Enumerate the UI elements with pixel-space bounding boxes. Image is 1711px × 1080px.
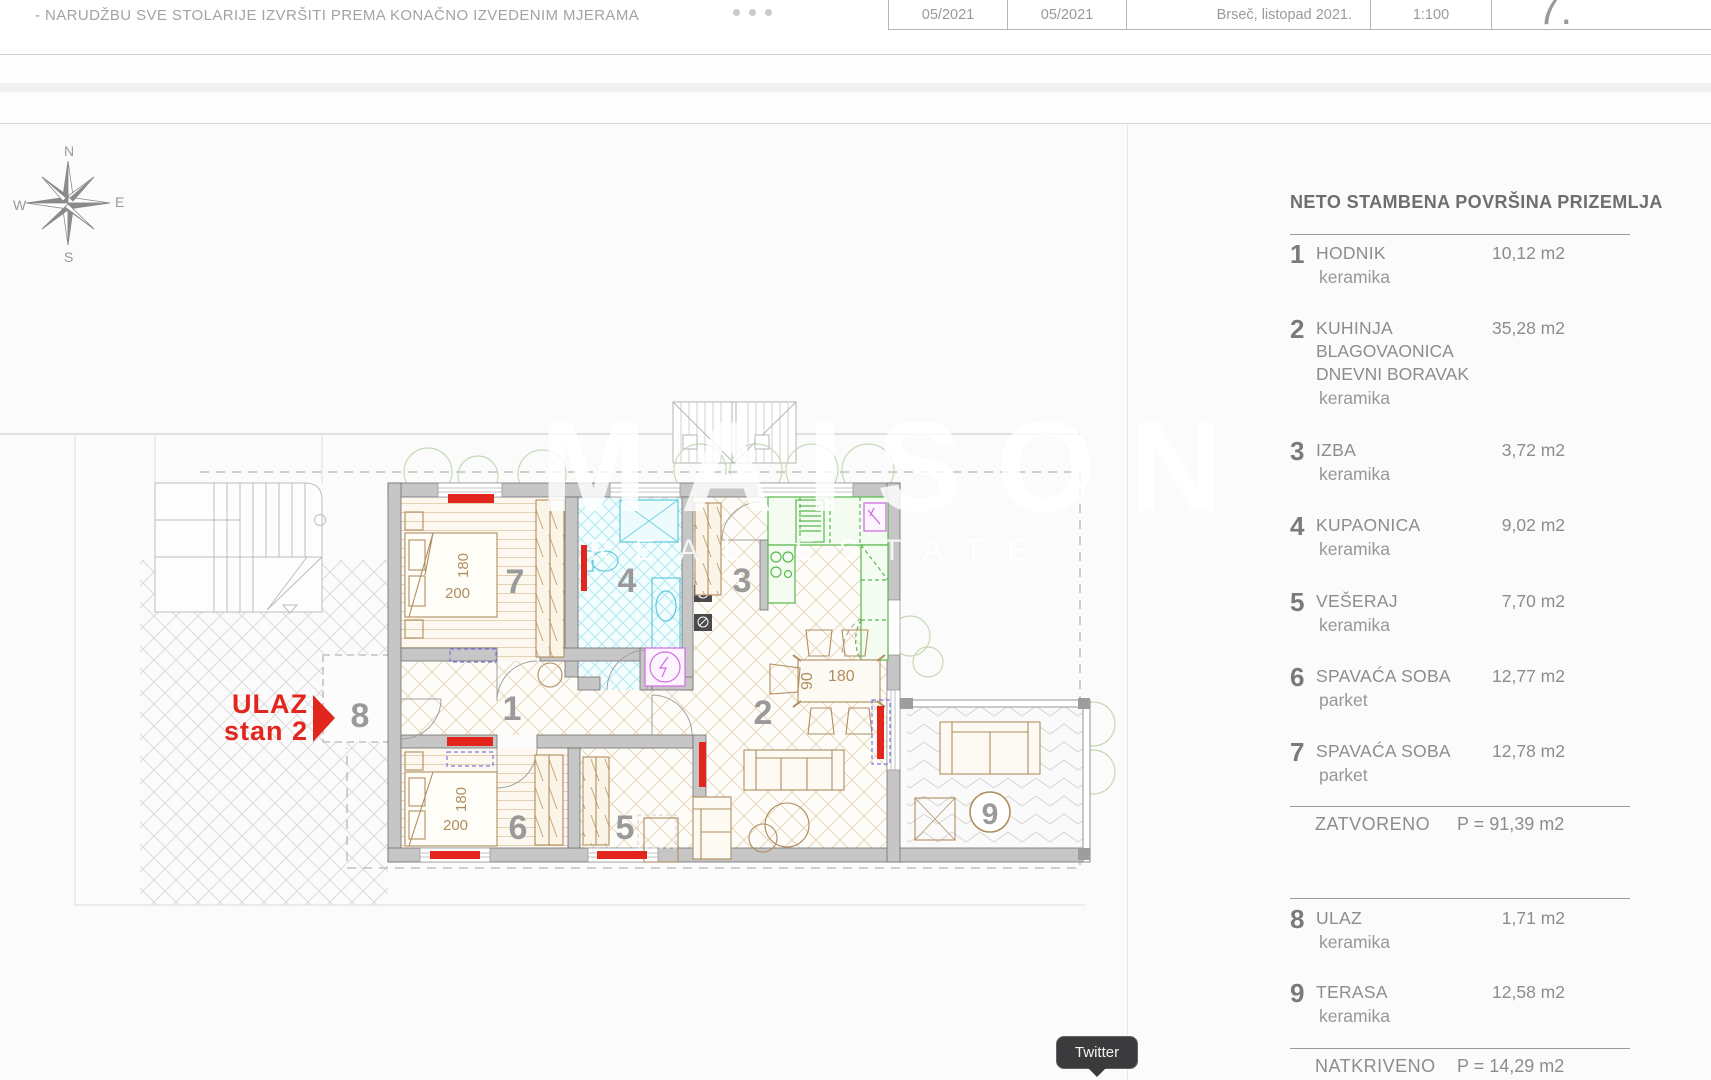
sheet-number: 7. — [1537, 0, 1572, 29]
room-label-4: 4 — [618, 562, 637, 600]
legend-item-material: keramika — [1319, 932, 1390, 953]
legend-item-number: 3 — [1290, 436, 1304, 467]
legend-total-label: NATKRIVENO — [1315, 1056, 1436, 1077]
legend-item-number: 7 — [1290, 737, 1304, 768]
legend-item-material: parket — [1319, 765, 1368, 786]
legend-rule — [1290, 898, 1630, 899]
legend-item-material: keramika — [1319, 388, 1390, 409]
twitter-tooltip: Twitter — [1056, 1036, 1138, 1069]
legend-item-area: 10,12 m2 — [1492, 243, 1565, 264]
bed7-dim-200: 200 — [445, 585, 470, 602]
legend-item-area: 7,70 m2 — [1502, 591, 1565, 612]
roof-plan-block — [673, 402, 796, 463]
legend-item-area: 35,28 m2 — [1492, 318, 1565, 339]
legend-item-area: 1,71 m2 — [1502, 908, 1565, 929]
legend-item-name: IZBA — [1316, 440, 1356, 461]
room-label-1: 1 — [503, 690, 522, 728]
legend-item-name: VEŠERAJ — [1316, 591, 1398, 612]
legend-item-number: 2 — [1290, 314, 1304, 345]
legend-item-number: 1 — [1290, 239, 1304, 270]
table-dim-90: 90 — [799, 672, 816, 690]
legend-item-number: 8 — [1290, 904, 1304, 935]
compass-rose-icon: N E S W — [13, 143, 124, 265]
legend-item-number: 6 — [1290, 662, 1304, 693]
legend-item-area: 12,78 m2 — [1492, 741, 1565, 762]
legend-item-number: 5 — [1290, 587, 1304, 618]
title-block-date-2: 05/2021 — [1007, 0, 1126, 29]
bed6-dim-200: 200 — [443, 817, 468, 834]
legend-item-material: parket — [1319, 690, 1368, 711]
legend-total-value: P = 91,39 m2 — [1457, 814, 1564, 835]
legend-rule — [1290, 234, 1630, 235]
external-staircase — [155, 434, 326, 613]
legend-rule — [1290, 1048, 1630, 1049]
entrance-label-line2: stan 2 — [224, 716, 308, 746]
legend-item-name-line2: BLAGOVAONICA — [1316, 341, 1454, 362]
title-block-place-date: Brseč, listopad 2021. — [1126, 0, 1370, 29]
legend-item-area: 12,77 m2 — [1492, 666, 1565, 687]
legend-title: NETO STAMBENA POVRŠINA PRIZEMLJA — [1290, 192, 1630, 213]
room-label-9: 9 — [982, 798, 999, 831]
legend-item-name: SPAVAĆA SOBA — [1316, 741, 1451, 762]
bed7-dim-180: 180 — [455, 553, 472, 578]
twitter-tooltip-label: Twitter — [1075, 1044, 1119, 1061]
legend-item-area: 12,58 m2 — [1492, 982, 1565, 1003]
title-block-date-1: 05/2021 — [888, 0, 1007, 29]
legend-total-label: ZATVORENO — [1315, 814, 1430, 835]
legend-item-material: keramika — [1319, 464, 1390, 485]
legend-total-value: P = 14,29 m2 — [1457, 1056, 1564, 1077]
legend-item-name-line3: DNEVNI BORAVAK — [1316, 364, 1469, 385]
compass-south-label: S — [64, 249, 73, 265]
bed6-dim-180: 180 — [453, 787, 470, 812]
title-block-table: 05/2021 05/2021 Brseč, listopad 2021. 1:… — [888, 0, 1711, 30]
floor-plan-drawing: 200 180 200 180 — [0, 0, 1711, 1080]
room-label-2: 2 — [754, 694, 773, 732]
legend-rule — [1290, 806, 1630, 807]
boiler-unit — [645, 648, 685, 686]
legend-item-name: HODNIK — [1316, 243, 1386, 264]
compass-north-label: N — [64, 143, 74, 159]
legend-item-name: KUPAONICA — [1316, 515, 1420, 536]
room-label-7: 7 — [506, 563, 525, 601]
legend-item-material: keramika — [1319, 539, 1390, 560]
izba-wardrobe — [695, 503, 721, 595]
legend-item-name: KUHINJA — [1316, 318, 1393, 339]
legend-item-material: keramika — [1319, 1006, 1390, 1027]
legend-item-material: keramika — [1319, 615, 1390, 636]
table-dim-180: 180 — [828, 668, 855, 685]
more-options-icon[interactable] — [733, 9, 772, 16]
title-block-sheet-cell: 7. — [1491, 0, 1711, 29]
entrance-label-line1: ULAZ — [232, 689, 308, 719]
document-header: - NARUDŽBU SVE STOLARIJE IZVRŠITI PREMA … — [0, 0, 1711, 55]
legend-item-name: ULAZ — [1316, 908, 1362, 929]
room-label-8: 8 — [351, 697, 370, 735]
title-block-scale: 1:100 — [1370, 0, 1491, 29]
legend-item-area: 9,02 m2 — [1502, 515, 1565, 536]
legend-item-number: 4 — [1290, 511, 1304, 542]
legend-item-name: TERASA — [1316, 982, 1388, 1003]
legend-item-material: keramika — [1319, 267, 1390, 288]
room-label-3: 3 — [733, 562, 752, 600]
legend-item-number: 9 — [1290, 978, 1304, 1009]
compass-east-label: E — [115, 194, 124, 210]
compass-west-label: W — [13, 197, 27, 213]
room-label-5: 5 — [616, 809, 635, 847]
note-text: - NARUDŽBU SVE STOLARIJE IZVRŠITI PREMA … — [35, 7, 639, 24]
legend-item-area: 3,72 m2 — [1502, 440, 1565, 461]
kitchen-hob — [864, 503, 886, 531]
room-label-6: 6 — [509, 809, 528, 847]
legend-item-name: SPAVAĆA SOBA — [1316, 666, 1451, 687]
